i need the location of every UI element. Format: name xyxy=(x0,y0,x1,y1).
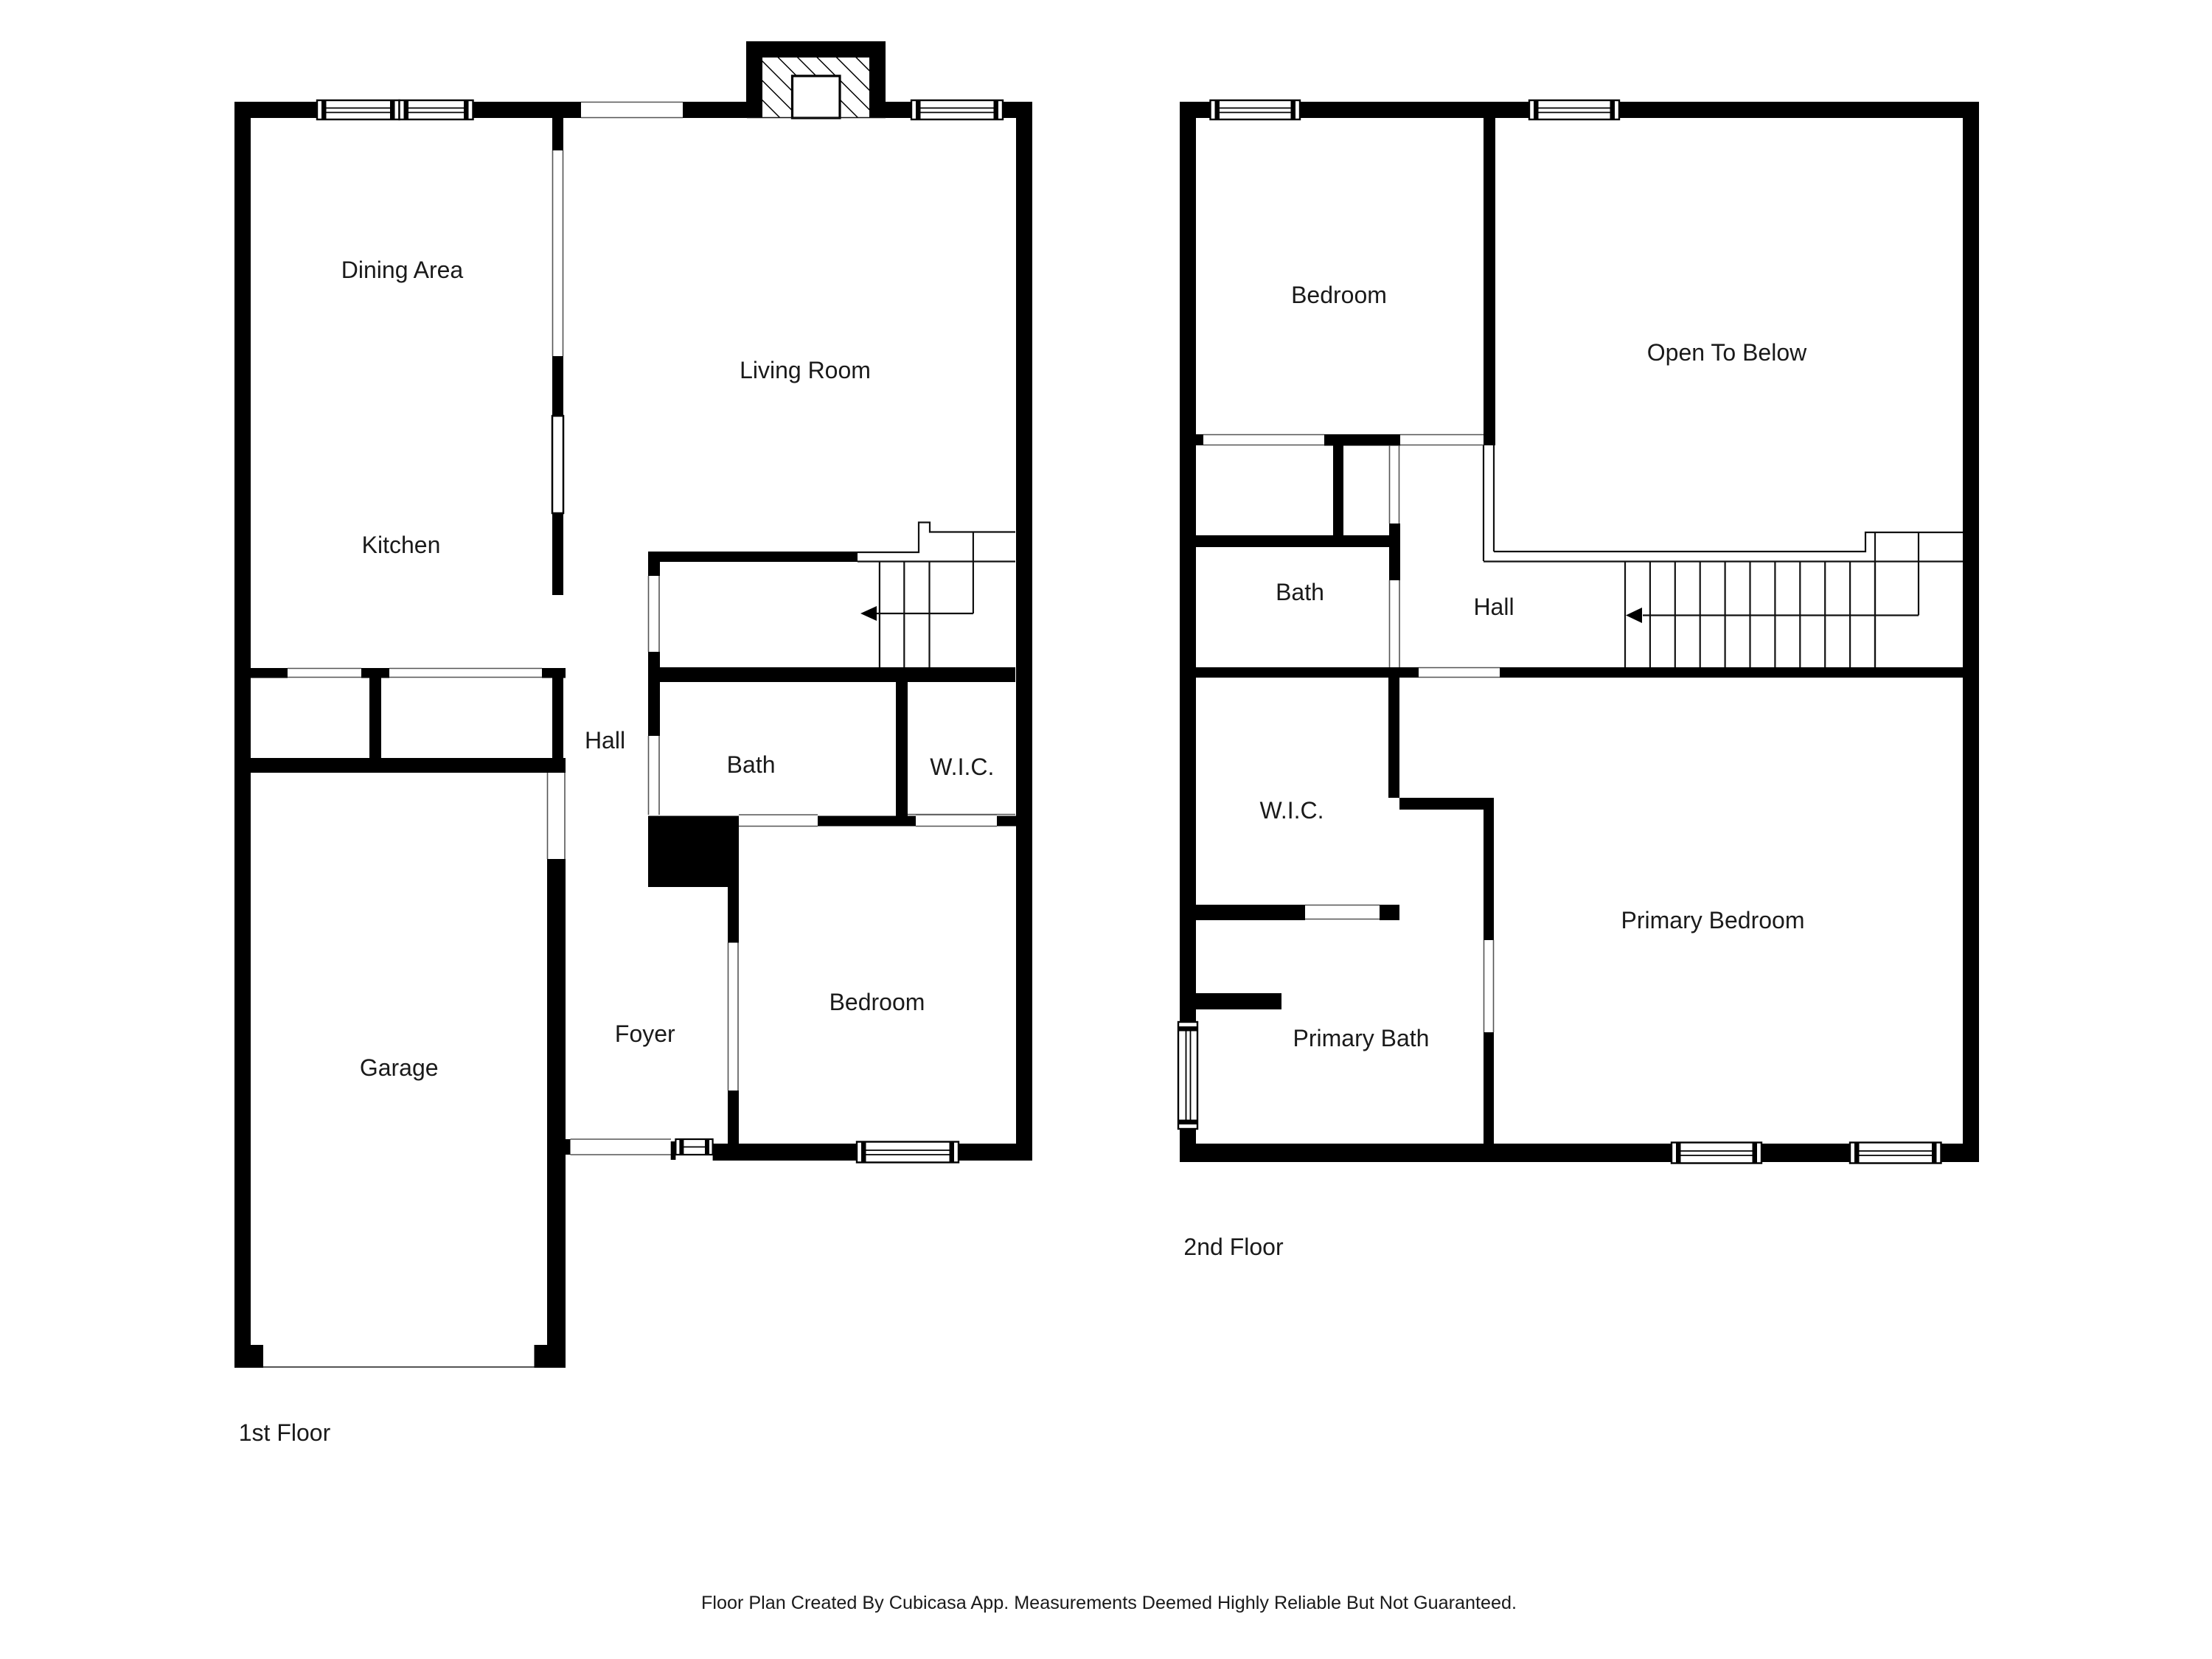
svg-text:Dining Area: Dining Area xyxy=(341,257,464,283)
svg-text:Hall: Hall xyxy=(1473,594,1514,620)
svg-text:Kitchen: Kitchen xyxy=(362,532,441,558)
svg-text:Floor Plan Created By Cubicasa: Floor Plan Created By Cubicasa App. Meas… xyxy=(701,1593,1517,1613)
svg-text:Bath: Bath xyxy=(1276,579,1324,605)
svg-text:Primary Bedroom: Primary Bedroom xyxy=(1621,907,1805,933)
svg-text:Bath: Bath xyxy=(727,751,776,778)
svg-text:Hall: Hall xyxy=(585,727,625,754)
svg-text:Garage: Garage xyxy=(360,1054,439,1081)
svg-text:W.I.C.: W.I.C. xyxy=(930,754,994,780)
svg-text:2nd Floor: 2nd Floor xyxy=(1183,1234,1284,1260)
svg-text:Bedroom: Bedroom xyxy=(1291,282,1387,308)
svg-text:1st Floor: 1st Floor xyxy=(239,1419,331,1446)
svg-text:Foyer: Foyer xyxy=(615,1020,675,1047)
svg-text:Living Room: Living Room xyxy=(740,357,871,383)
svg-text:W.I.C.: W.I.C. xyxy=(1259,797,1324,824)
svg-text:Open To Below: Open To Below xyxy=(1647,339,1807,366)
svg-text:Primary Bath: Primary Bath xyxy=(1293,1025,1430,1051)
svg-text:Bedroom: Bedroom xyxy=(829,989,925,1015)
